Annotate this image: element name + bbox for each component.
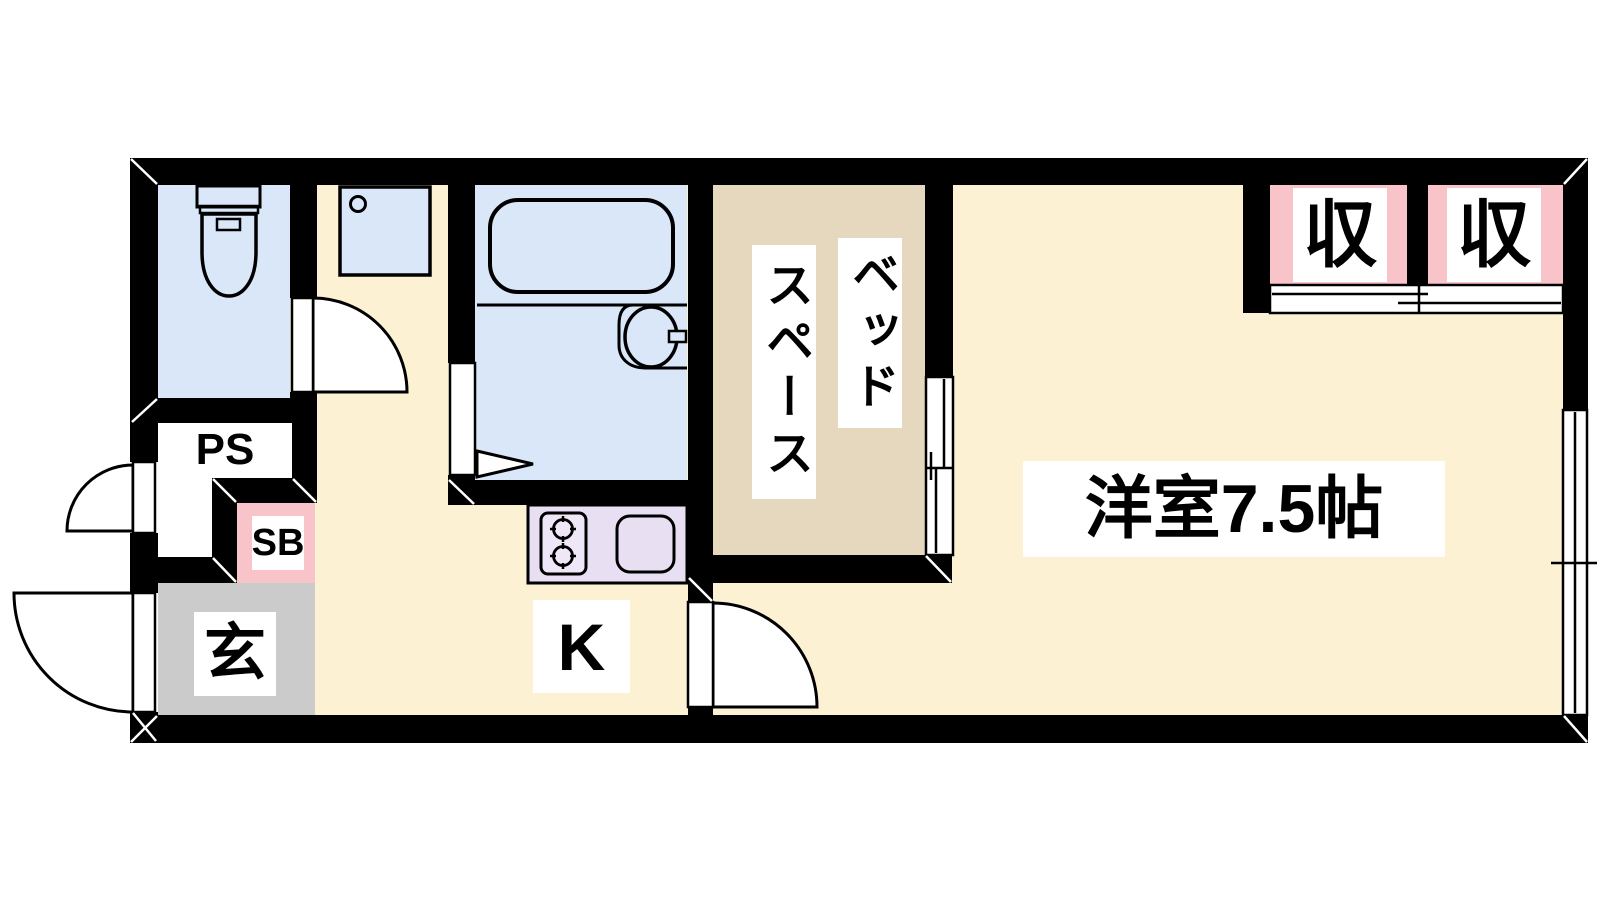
- wall-left-upper: [130, 158, 158, 462]
- bed-space-label-line1: ベッド: [838, 238, 902, 428]
- wash-basin-icon: [340, 187, 430, 275]
- shoe-box-label: SB: [252, 516, 304, 570]
- wall-bath-bed-divider: [688, 183, 713, 480]
- wall-bath-bottom: [448, 480, 713, 505]
- bed-space-sliding-door: [926, 377, 953, 555]
- kitchen-sink-icon: [617, 516, 674, 572]
- stove-icon: [541, 513, 586, 574]
- wall-left-mid: [130, 533, 158, 593]
- wall-right-upper: [1563, 158, 1588, 410]
- wall-closet-divider: [1407, 183, 1428, 285]
- wall-bottom: [130, 715, 1588, 743]
- bathroom-floor: [475, 185, 687, 480]
- door-leaf-main-room: [688, 602, 713, 707]
- door-leaf-toilet: [292, 298, 313, 392]
- closet-right-label: 収: [1447, 188, 1541, 282]
- closet-left-label: 収: [1293, 188, 1387, 282]
- door-leaf-bathroom: [450, 363, 475, 475]
- bed-space-label-line2: スペース: [752, 245, 816, 499]
- wall-bath-left-upper: [448, 183, 475, 363]
- entrance-label: 玄: [194, 612, 276, 696]
- wall-top: [130, 158, 1588, 185]
- door-leaf-left-upper: [133, 462, 155, 533]
- door-swing-entrance: [14, 593, 133, 712]
- wall-bed-main-divider: [925, 185, 953, 377]
- closet-sliding-doors: [1270, 285, 1563, 313]
- western-room-label: 洋室7.5帖: [1023, 461, 1445, 557]
- wall-toilet-right-upper: [290, 183, 317, 298]
- wall-above-entrance: [158, 557, 212, 583]
- pipe-space-label: PS: [158, 422, 292, 478]
- wall-kitchen-right: [688, 505, 713, 602]
- floor-plan: PS SB 玄 K ベッド スペース 洋室7.5帖 収 収: [0, 0, 1600, 900]
- wall-closet-left: [1243, 183, 1270, 313]
- pipe-space-area-lower: [158, 478, 212, 557]
- wall-below-toilet: [158, 398, 317, 423]
- door-leaf-entrance: [133, 593, 155, 712]
- wall-ps-column: [212, 478, 237, 583]
- kitchen-label: K: [533, 600, 630, 693]
- wall-bed-bottom: [688, 555, 952, 583]
- door-swing-left-upper: [67, 465, 133, 531]
